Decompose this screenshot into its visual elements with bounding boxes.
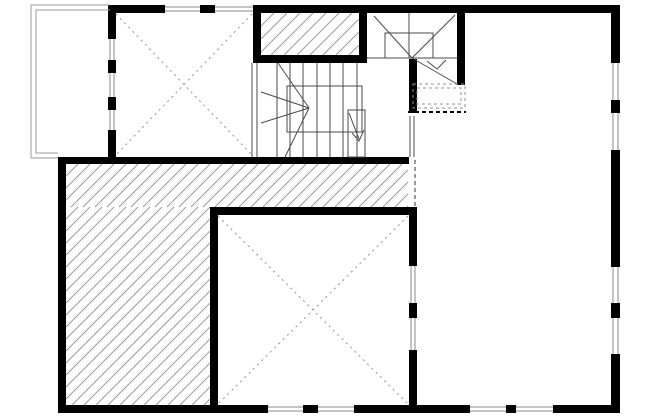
wall-segment: [506, 405, 516, 413]
wall-segment: [253, 5, 261, 63]
wall-segment: [611, 303, 620, 318]
wall-segment: [457, 13, 465, 85]
wall-segment: [553, 405, 620, 413]
window: [611, 113, 620, 150]
wall-segment: [210, 207, 218, 413]
wall-segment: [409, 350, 417, 413]
window-gap: [215, 5, 253, 13]
window: [409, 318, 417, 350]
window: [516, 405, 553, 413]
wall-segment: [367, 5, 620, 13]
window-gap: [165, 5, 200, 13]
window: [215, 5, 253, 13]
window-gap: [268, 405, 303, 413]
wall-segment: [108, 97, 116, 110]
window: [108, 110, 116, 130]
window: [611, 318, 620, 354]
window-gap: [611, 318, 620, 354]
window-gap: [108, 110, 116, 130]
window-gap: [318, 405, 354, 413]
wall-segment: [58, 157, 409, 164]
wall-segment: [611, 5, 620, 63]
window: [611, 63, 620, 100]
floor-plan: [0, 0, 650, 416]
wall-segment: [409, 215, 417, 266]
wall-segment: [611, 100, 620, 113]
window-gap: [611, 267, 620, 303]
window: [611, 267, 620, 303]
wall-segment: [108, 5, 165, 13]
wall-segment: [409, 303, 417, 318]
window-gap: [611, 63, 620, 100]
wall-segment: [253, 5, 367, 13]
window-gap: [409, 266, 417, 303]
wall-segment: [58, 405, 268, 413]
window: [268, 405, 303, 413]
window-gap: [409, 318, 417, 350]
wall-segment: [303, 405, 318, 413]
window-gap: [470, 405, 506, 413]
window: [165, 5, 200, 13]
window: [318, 405, 354, 413]
wall-segment: [108, 130, 116, 158]
window-gap: [611, 113, 620, 150]
wall-segment: [58, 157, 66, 413]
wall-segment: [200, 5, 215, 13]
wall-segment: [108, 60, 116, 73]
wall-segment: [611, 354, 620, 413]
window-gap: [108, 39, 116, 60]
window-gap: [108, 73, 116, 97]
window: [108, 73, 116, 97]
hatch-line: [407, 206, 408, 207]
floor-plan-svg: [0, 0, 650, 416]
wall-segment: [253, 55, 367, 63]
window: [470, 405, 506, 413]
wall-segment: [611, 150, 620, 267]
wall-segment: [210, 207, 417, 215]
window: [108, 39, 116, 60]
window: [409, 266, 417, 303]
wall-segment: [359, 5, 367, 63]
window-gap: [516, 405, 553, 413]
